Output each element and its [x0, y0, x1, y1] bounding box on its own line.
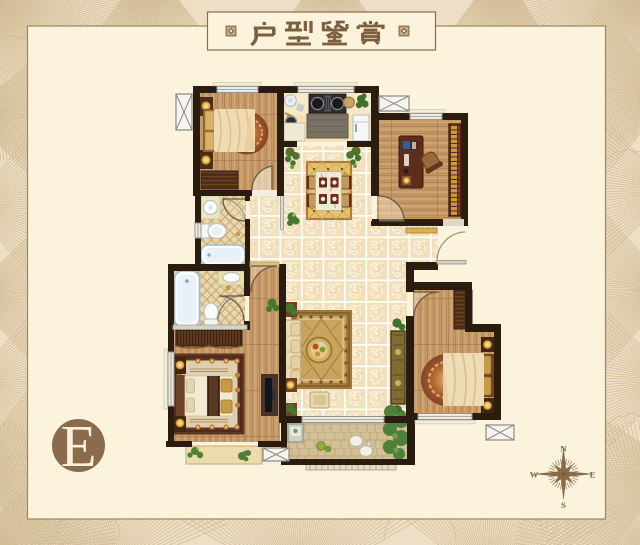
svg-text:S: S	[561, 500, 566, 510]
svg-text:N: N	[560, 444, 567, 454]
svg-text:E: E	[60, 413, 96, 479]
svg-text:W: W	[530, 470, 539, 480]
svg-text:E: E	[590, 470, 596, 480]
